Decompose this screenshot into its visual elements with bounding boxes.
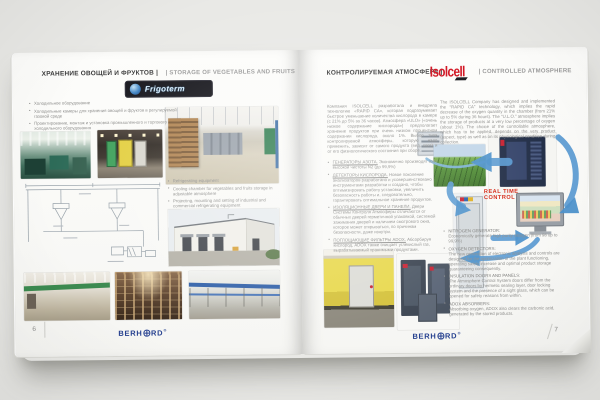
- berhord-logo-text: RD: [445, 331, 457, 340]
- berhord-logo-text: BERH: [412, 332, 436, 341]
- berhord-logo: BERH RD ®: [118, 328, 166, 338]
- berhord-globe-icon: [143, 330, 150, 337]
- list-item: NITROGEN GENERATOR:Economically generate…: [443, 227, 560, 243]
- cold-store-doors-photo: [97, 129, 162, 178]
- bullet-text: Absorbing oxygen, ADOX also clears the c…: [449, 305, 554, 316]
- photo-detail: [25, 159, 46, 175]
- right-bullets-ru: ГЕНЕРАТОРЫ АЗОТА. Экономично производят …: [328, 159, 440, 256]
- berhord-logo-text: BERH: [118, 329, 142, 338]
- bullet-text: The Atmosphere Control System doors diff…: [449, 278, 554, 299]
- factory-interior-photo: [20, 131, 90, 179]
- real-time-control-label: REAL TIME CONTROL: [484, 189, 519, 202]
- left-page: ХРАНЕНИЕ ОВОЩЕЙ И ФРУКТОВ | | STORAGE OF…: [12, 50, 302, 357]
- page-curl: [560, 329, 590, 353]
- label-line: CONTROL: [484, 195, 519, 202]
- right-page: КОНТРОЛИРУЕМАЯ АТМОСФЕРА | Isolcell | CO…: [299, 47, 589, 354]
- photo-detail: [24, 272, 110, 282]
- bullet-text: Проектирование, монтаж и установка промы…: [34, 120, 167, 131]
- list-item: Холодильное оборудование: [29, 99, 184, 106]
- list-item: ИЗОЛЯЦИОННЫЕ ДВЕРИ И ПАНЕЛИ. Двери Систе…: [328, 204, 439, 235]
- intro-paragraph-en: The ISOLCELL Company has designed and im…: [440, 98, 555, 144]
- bullet-text: Cooling chamber for vegetables and fruit…: [173, 185, 273, 196]
- photo-detail: [265, 128, 275, 154]
- photo-detail: [134, 140, 146, 167]
- list-item: INSULATION DOORS AND PANELS:The Atmosphe…: [444, 272, 561, 298]
- left-bullets-ru: Холодильное оборудование Холодильные кам…: [29, 99, 184, 133]
- yellow-room-door-photo: [324, 249, 395, 328]
- photo-detail: [100, 133, 160, 137]
- photo-detail: [50, 155, 68, 169]
- berhord-logo-text: RD: [151, 328, 163, 337]
- list-item: Холодильные камеры для хранения овощей и…: [29, 107, 184, 119]
- bullet-text: Refrigerating equipment: [173, 178, 219, 183]
- left-bullets-en: Refrigerating equipment Cooling chamber …: [168, 177, 276, 211]
- list-item: ГЕНЕРАТОРЫ АЗОТА. Экономично производят …: [328, 159, 439, 170]
- list-item: ДЕТЕКТОРЫ КИСЛОРОДА. Новое поколение ана…: [328, 171, 439, 202]
- brochure-spread: ХРАНЕНИЕ ОВОЩЕЙ И ФРУКТОВ | | STORAGE OF…: [12, 47, 589, 357]
- berhord-logo: BERH RD ®: [412, 331, 460, 341]
- list-item: Projecting, mounting and setting of indu…: [168, 197, 276, 208]
- photo-detail: [324, 255, 394, 258]
- page-number-right: 7: [554, 326, 558, 333]
- right-header-ru: КОНТРОЛИРУЕМАЯ АТМОСФЕРА |: [327, 69, 443, 77]
- list-item: ADOX ABSORBERS:Absorbing oxygen, ADOX al…: [444, 300, 561, 316]
- berhord-globe-icon: [437, 333, 444, 340]
- isolcell-logo: Isolcell: [430, 63, 473, 81]
- right-header-en: | CONTROLLED ATMOSPHERE: [479, 68, 572, 75]
- bullet-text: The new generation of electronic analysi…: [449, 250, 560, 271]
- bullet-text: Холодильные камеры для хранения овощей и…: [34, 107, 177, 118]
- bullet-text: Projecting, mounting and setting of indu…: [173, 198, 266, 209]
- isolcell-swoosh-icon: [455, 77, 468, 80]
- page-number-left: 6: [32, 326, 36, 333]
- fold-mark: [547, 324, 552, 339]
- list-item: Cooling chamber for vegetables and fruit…: [168, 185, 276, 196]
- photo-detail: [72, 158, 86, 175]
- photo-detail: [189, 287, 280, 307]
- photo-detail: [24, 283, 110, 292]
- warehouse-exterior-photo: [168, 208, 280, 266]
- registered-mark: ®: [164, 328, 167, 332]
- storage-racks-photo: [115, 271, 182, 320]
- photo-detail: [106, 140, 117, 167]
- list-item: OXYGEN DETECTORS:The new generation of e…: [443, 245, 560, 271]
- bullet-text: Холодильное оборудование: [34, 100, 90, 106]
- registered-mark: ®: [458, 331, 461, 335]
- left-header-ru: ХРАНЕНИЕ ОВОЩЕЙ И ФРУКТОВ |: [42, 69, 159, 77]
- hall-green-beam-photo: [24, 272, 110, 321]
- photo-detail: [418, 293, 437, 322]
- bullet-text: Economically generate high purity nitrog…: [448, 232, 557, 243]
- photo-detail: [119, 139, 133, 167]
- photo-detail: [275, 120, 279, 168]
- list-item: Refrigerating equipment: [168, 177, 276, 183]
- frigoterm-logo: Frigoterm: [125, 80, 213, 98]
- photo-detail: [27, 294, 37, 308]
- refrigeration-scheme-drawing: [23, 180, 164, 271]
- intro-paragraph-ru: Компания ISOLCELL разработала и внедрила…: [327, 103, 438, 154]
- frigoterm-logo-text: Frigoterm: [145, 84, 185, 93]
- list-item: Проектирование, монтаж и установка промы…: [29, 119, 184, 131]
- photo-detail: [204, 133, 243, 155]
- frigoterm-globe-icon: [130, 84, 141, 95]
- hall-blue-beam-photo: [189, 270, 280, 319]
- right-bullets-en: NITROGEN GENERATOR:Economically generate…: [443, 227, 561, 319]
- left-header-en: | STORAGE OF VEGETABLES AND FRUITS: [166, 69, 295, 76]
- fold-mark: [44, 322, 45, 338]
- list-item: ПОГЛОЩАЮЩИЕ ФИЛЬТРЫ ADOX. Абсорбируя кис…: [328, 236, 439, 252]
